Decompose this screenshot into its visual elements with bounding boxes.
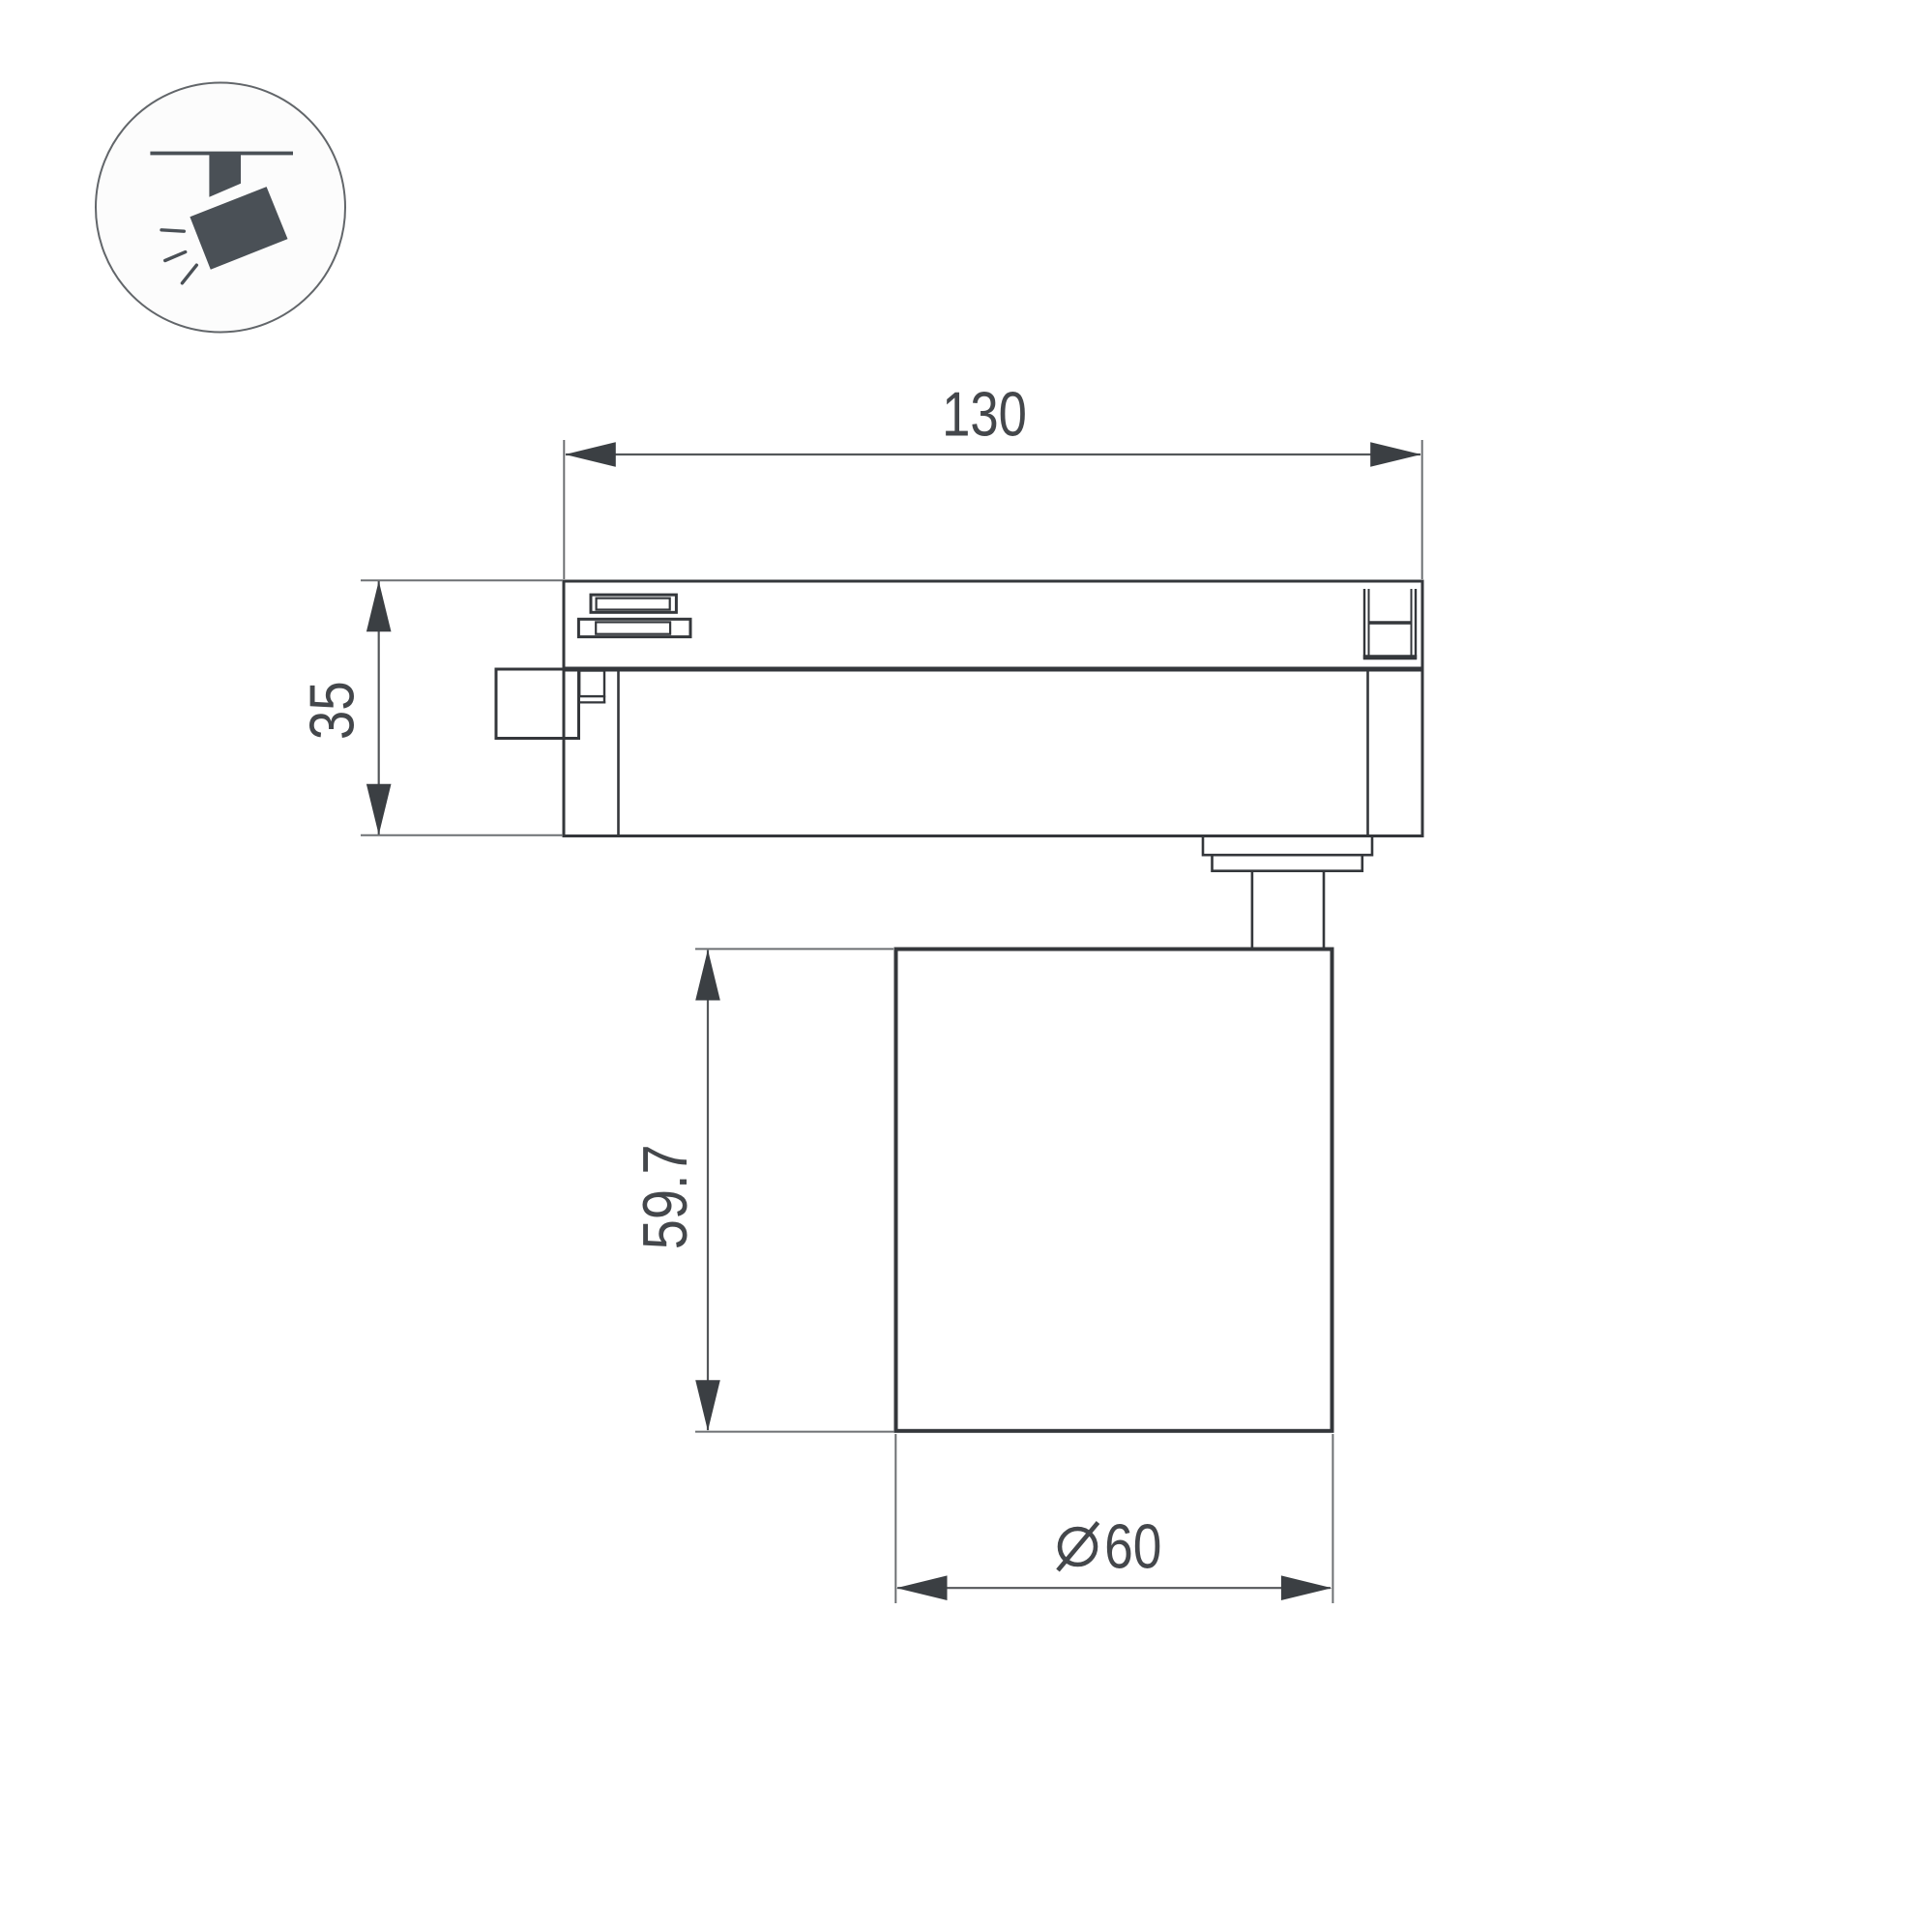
svg-text:35: 35	[297, 681, 367, 740]
svg-text:60: 60	[1104, 1510, 1161, 1581]
svg-text:130: 130	[942, 378, 1027, 450]
svg-text:59.7: 59.7	[629, 1144, 700, 1249]
